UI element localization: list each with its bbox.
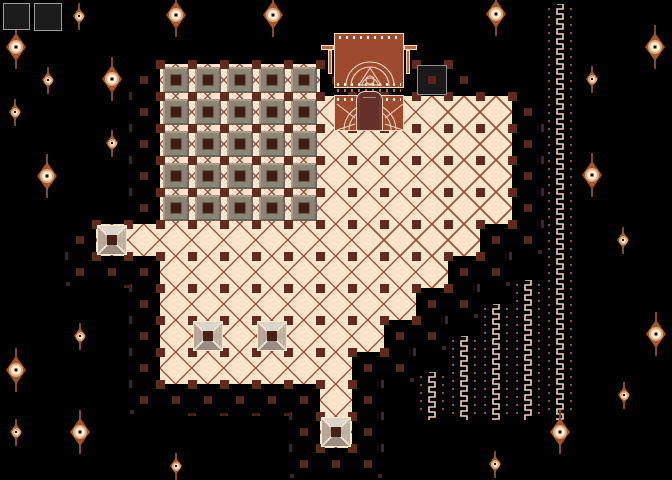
ornament-pupil [111, 142, 113, 144]
ornament-pupil [79, 335, 81, 337]
floor-corner-dot [316, 348, 325, 357]
floor-corner-dot [412, 220, 421, 229]
block-center-stone [299, 203, 310, 214]
figure-hood-line [363, 97, 376, 98]
floor-corner-dot [316, 188, 325, 197]
block-tile [259, 67, 285, 93]
wall-rune-square [364, 460, 372, 468]
wall-rune-square [332, 460, 340, 468]
block-tile [195, 67, 221, 93]
chain-curtain [484, 304, 510, 420]
eye-ornament-large [70, 410, 90, 454]
eye-ornament-large [37, 154, 57, 198]
chain-zigzag [420, 372, 446, 420]
block-tile [259, 131, 285, 157]
wall-rune-square [364, 364, 372, 372]
wall-rune-dash [541, 220, 544, 228]
block-center-stone [203, 107, 214, 118]
floor-corner-dot [412, 188, 421, 197]
floor-corner-dot [316, 220, 325, 229]
ornament-pupil [175, 465, 177, 467]
eye-ornament-small [74, 323, 86, 350]
wall-rune-square [300, 428, 308, 436]
wall-rune-dash [413, 348, 416, 356]
ornament-pupil [622, 239, 624, 241]
block-tile [227, 131, 253, 157]
floor-corner-dot [188, 124, 197, 133]
floor-corner-dot [412, 316, 421, 325]
wall-rune-dash [442, 346, 446, 350]
wall-rune-square [76, 268, 84, 276]
wall-rune-square [492, 268, 500, 276]
block-tile [227, 195, 253, 221]
floor-corner-dot [316, 252, 325, 261]
wall-rune-square [140, 76, 148, 84]
floor-corner-dot [188, 92, 197, 101]
wall-rune-dash [541, 124, 544, 132]
block-center-stone [299, 139, 310, 150]
floor-corner-dot [380, 348, 389, 357]
floor-corner-dot [188, 380, 197, 389]
block-center-stone [267, 75, 278, 86]
floor-corner-dot [220, 220, 229, 229]
floor-corner-dot [348, 220, 357, 229]
eye-ornament-large [166, 0, 186, 37]
eye-ornament-large [102, 57, 122, 101]
floor-corner-dot [156, 252, 165, 261]
block-center-stone [203, 139, 214, 150]
floor-corner-dot [284, 252, 293, 261]
block-tile [291, 163, 317, 189]
floor-corner-dot [284, 156, 293, 165]
floor-corner-dot [284, 284, 293, 293]
block-center-stone [299, 107, 310, 118]
wall-rune-dash [410, 378, 414, 382]
inventory-slot-1[interactable] [3, 3, 30, 30]
wall-rune-square [140, 396, 148, 404]
floor-corner-dot [476, 124, 485, 133]
ornament-iris [619, 236, 628, 245]
ornament-iris [44, 76, 53, 85]
block-tile [259, 195, 285, 221]
wall-rune-dash [130, 410, 134, 414]
ornament-pupil [15, 431, 17, 433]
ornament-iris [73, 425, 87, 439]
ornament-iris [553, 425, 567, 439]
floor-corner-dot [412, 124, 421, 133]
ornament-pupil [655, 333, 658, 336]
wall-rune-square [428, 300, 436, 308]
wall-rune-dash [252, 413, 260, 416]
wall-rune-dash [129, 156, 132, 164]
wall-rune-dash [129, 188, 132, 196]
floor-corner-dot [508, 156, 517, 165]
block-tile [291, 131, 317, 157]
floor-corner-dot [252, 124, 261, 133]
dark-socket-tile[interactable] [417, 65, 447, 95]
block-center-stone [235, 107, 246, 118]
block-tile [163, 67, 189, 93]
ornament-pupil [15, 46, 18, 49]
block-tile [291, 67, 317, 93]
eye-ornament-small [42, 67, 54, 94]
wall-rune-dash [474, 314, 478, 318]
wall-rune-square [428, 332, 436, 340]
ornament-pupil [46, 175, 49, 178]
block-tile [195, 195, 221, 221]
pressure-plate-tile[interactable] [193, 321, 223, 351]
inventory-slot-2[interactable] [34, 3, 62, 31]
ornament-pupil [111, 78, 114, 81]
ornament-iris [266, 8, 280, 22]
eye-ornament-small [73, 3, 85, 30]
wall-rune-square [524, 204, 532, 212]
floor-corner-dot [156, 92, 165, 101]
ornament-pupil [495, 13, 498, 16]
wall-rune-dash [188, 413, 196, 416]
block-tile [227, 67, 253, 93]
ornament-iris [9, 363, 23, 377]
block-center-stone [267, 171, 278, 182]
wall-rune-square [140, 108, 148, 116]
torch-post [406, 50, 410, 74]
block-center-stone [299, 171, 310, 182]
block-center-stone [267, 203, 278, 214]
floor-corner-dot [220, 156, 229, 165]
wall-rune-square [524, 108, 532, 116]
floor-corner-dot [220, 188, 229, 197]
eye-ornament-small [106, 130, 118, 157]
wall-rune-square [300, 460, 308, 468]
wall-rune-dash [541, 156, 544, 164]
altar-eye-emblem [335, 34, 404, 88]
chain-curtain [548, 4, 574, 420]
wall-rune-square [300, 396, 308, 404]
floor-corner-dot [252, 284, 261, 293]
block-center-stone [235, 203, 246, 214]
wall-rune-dash [129, 316, 132, 324]
block-center-stone [203, 75, 214, 86]
floor-corner-dot [412, 284, 421, 293]
wall-rune-dash [129, 348, 132, 356]
floor-corner-dot [188, 252, 197, 261]
ornament-iris [12, 428, 21, 437]
chain-curtain [420, 372, 446, 420]
wall-rune-dash [290, 474, 294, 478]
floor-corner-dot [348, 316, 357, 325]
pressure-plate-tile[interactable] [257, 321, 287, 351]
floor-corner-dot [284, 188, 293, 197]
wall-rune-dash [129, 92, 132, 100]
floor-corner-dot [444, 188, 453, 197]
block-center-stone [235, 75, 246, 86]
plate-center-stone [203, 331, 213, 341]
ornament-iris [648, 40, 662, 54]
block-tile [163, 163, 189, 189]
ornament-pupil [47, 79, 49, 81]
block-tile [227, 99, 253, 125]
floor-corner-dot [252, 92, 261, 101]
floor-corner-dot [316, 284, 325, 293]
floor-corner-dot [220, 60, 229, 69]
floor-corner-dot [284, 92, 293, 101]
floor-corner-dot [444, 156, 453, 165]
eye-ornament-large [645, 25, 665, 69]
eye-ornament-small [586, 66, 598, 93]
block-tile [259, 99, 285, 125]
wall-rune-dash [381, 380, 384, 388]
floor-corner-dot [380, 156, 389, 165]
plate-center-stone [267, 331, 277, 341]
floor-corner-dot [380, 316, 389, 325]
ornament-pupil [591, 78, 593, 80]
robed-figure[interactable] [356, 91, 383, 131]
floor-corner-dot [348, 156, 357, 165]
floor-corner-dot [412, 156, 421, 165]
floor-corner-dot [316, 92, 325, 101]
wall-rune-square [364, 428, 372, 436]
floor-corner-dot [220, 380, 229, 389]
block-tile [163, 195, 189, 221]
wall-rune-dash [445, 316, 448, 324]
floor-corner-dot [508, 220, 517, 229]
floor-corner-dot [444, 220, 453, 229]
eye-ornament-small [489, 451, 501, 478]
wall-rune-square [140, 364, 148, 372]
chain-zigzag [452, 336, 478, 420]
eye-ornament-large [646, 312, 666, 356]
floor-corner-dot [156, 284, 165, 293]
ornament-iris [11, 108, 20, 117]
plate-center-stone [331, 427, 341, 437]
wall-rune-square [140, 204, 148, 212]
ornament-pupil [175, 14, 178, 17]
floor-corner-dot [188, 220, 197, 229]
wall-rune-dash [378, 474, 382, 478]
wall-rune-square [204, 396, 212, 404]
block-center-stone [171, 107, 182, 118]
wall-rune-square [460, 300, 468, 308]
floor-corner-dot [444, 124, 453, 133]
ornament-iris [491, 460, 500, 469]
ornament-iris [585, 168, 599, 182]
floor-corner-dot [380, 220, 389, 229]
floor-corner-dot [316, 124, 325, 133]
floor-corner-dot [476, 92, 485, 101]
floor-corner-dot [220, 252, 229, 261]
wall-rune-square [140, 332, 148, 340]
ornament-iris [649, 327, 663, 341]
wall-rune-square [524, 172, 532, 180]
floor-corner-dot [156, 220, 165, 229]
floor-corner-dot [220, 92, 229, 101]
floor-corner-dot [380, 188, 389, 197]
block-center-stone [267, 107, 278, 118]
pressure-plate-tile[interactable] [97, 225, 127, 255]
eye-ornament-small [170, 453, 182, 480]
floor-corner-dot [252, 220, 261, 229]
wall-rune-square [364, 396, 372, 404]
floor-corner-dot [412, 252, 421, 261]
ornament-iris [75, 12, 84, 21]
floor-corner-dot [156, 124, 165, 133]
floor-tiles[interactable] [160, 256, 448, 288]
wall-rune-square [140, 300, 148, 308]
block-tile [195, 163, 221, 189]
floor-corner-dot [252, 380, 261, 389]
wall-rune-square [460, 268, 468, 276]
wall-rune-dash [477, 284, 480, 292]
game-viewport [0, 0, 672, 480]
wall-rune-square [140, 268, 148, 276]
wall-rune-square [236, 396, 244, 404]
floor-corner-dot [284, 124, 293, 133]
ornament-pupil [591, 174, 594, 177]
block-center-stone [171, 171, 182, 182]
eye-ornament-large [582, 153, 602, 197]
wall-rune-dash [381, 444, 384, 452]
floor-corner-dot [220, 124, 229, 133]
ornament-iris [105, 72, 119, 86]
floor-corner-dot [476, 188, 485, 197]
wall-rune-dash [381, 412, 384, 420]
floor-corner-dot [444, 284, 453, 293]
eye-ornament-small [618, 382, 630, 409]
wall-rune-dash [129, 380, 132, 388]
ornament-iris [620, 391, 629, 400]
floor-corner-dot [156, 60, 165, 69]
floor-corner-dot [188, 156, 197, 165]
chain-zigzag [516, 280, 542, 420]
wall-rune-square [108, 268, 116, 276]
ornament-iris [40, 169, 54, 183]
ornament-iris [172, 462, 181, 471]
floor-corner-dot [252, 156, 261, 165]
wall-rune-square [140, 172, 148, 180]
floor-corner-dot [156, 348, 165, 357]
floor-corner-dot [316, 316, 325, 325]
floor-corner-dot [348, 380, 357, 389]
wall-rune-dash [538, 250, 542, 254]
ornament-pupil [15, 369, 18, 372]
floor-corner-dot [188, 60, 197, 69]
block-tile [163, 99, 189, 125]
eye-ornament-small [10, 419, 22, 446]
wall-rune-square [268, 396, 276, 404]
floor-corner-dot [476, 252, 485, 261]
wall-rune-square [492, 236, 500, 244]
floor-corner-dot [476, 156, 485, 165]
block-center-stone [235, 171, 246, 182]
floor-corner-dot [380, 284, 389, 293]
block-center-stone [299, 75, 310, 86]
eye-ornament-large [6, 25, 26, 69]
ornament-pupil [79, 431, 82, 434]
floor-corner-dot [252, 188, 261, 197]
block-center-stone [235, 139, 246, 150]
ornament-iris [588, 75, 597, 84]
floor-corner-dot [156, 316, 165, 325]
plate-center-stone [107, 235, 117, 245]
eye-ornament-small [617, 227, 629, 254]
floor-corner-dot [316, 380, 325, 389]
floor-corner-dot [508, 92, 517, 101]
wall-rune-dash [506, 282, 510, 286]
ornament-iris [9, 40, 23, 54]
wall-rune-dash [129, 284, 132, 292]
floor-corner-dot [284, 220, 293, 229]
ornament-iris [108, 139, 117, 148]
floor-corner-dot [476, 220, 485, 229]
wall-rune-square [460, 76, 468, 84]
block-tile [163, 131, 189, 157]
floor-corner-dot [188, 284, 197, 293]
floor-corner-dot [316, 156, 325, 165]
block-center-stone [203, 203, 214, 214]
chain-curtain [516, 280, 542, 420]
ornament-iris [76, 332, 85, 341]
wall-rune-square [140, 140, 148, 148]
floor-corner-dot [348, 284, 357, 293]
ornament-pupil [14, 111, 16, 113]
wall-rune-square [76, 236, 84, 244]
eye-ornament-large [263, 0, 283, 37]
floor-corner-dot [380, 252, 389, 261]
wall-rune-dash [66, 282, 70, 286]
block-center-stone [171, 139, 182, 150]
altar-canopy[interactable] [334, 33, 404, 88]
floor-corner-dot [252, 252, 261, 261]
floor-corner-dot [252, 60, 261, 69]
wall-rune-square [524, 140, 532, 148]
ornament-pupil [654, 46, 657, 49]
ornament-pupil [494, 463, 496, 465]
block-tile [227, 163, 253, 189]
floor-corner-dot [348, 348, 357, 357]
wall-rune-dash [129, 124, 132, 132]
eye-ornament-large [486, 0, 506, 36]
floor-corner-dot [508, 188, 517, 197]
block-tile [195, 99, 221, 125]
floor-corner-dot [444, 252, 453, 261]
chain-zigzag [548, 4, 574, 420]
floor-corner-dot [156, 188, 165, 197]
ornament-iris [489, 7, 503, 21]
block-center-stone [171, 203, 182, 214]
pressure-plate-tile[interactable] [321, 417, 351, 447]
floor-corner-dot [284, 60, 293, 69]
block-tile [259, 163, 285, 189]
eye-ornament-small [9, 99, 21, 126]
socket-gem-dot [428, 76, 436, 84]
eye-ornament-large [6, 348, 26, 392]
ornament-pupil [272, 14, 275, 17]
ornament-pupil [78, 15, 80, 17]
torch-post [328, 50, 332, 74]
eye-ornament-large [550, 410, 570, 454]
chain-curtain [452, 336, 478, 420]
wall-rune-dash [65, 252, 68, 260]
altar-torch [404, 45, 419, 77]
wall-rune-dash [509, 252, 512, 260]
floor-corner-dot [284, 380, 293, 389]
block-tile [291, 99, 317, 125]
wall-rune-dash [289, 444, 292, 452]
wall-rune-square [396, 332, 404, 340]
ornament-iris [169, 8, 183, 22]
block-tile [195, 131, 221, 157]
wall-rune-dash [289, 412, 292, 420]
